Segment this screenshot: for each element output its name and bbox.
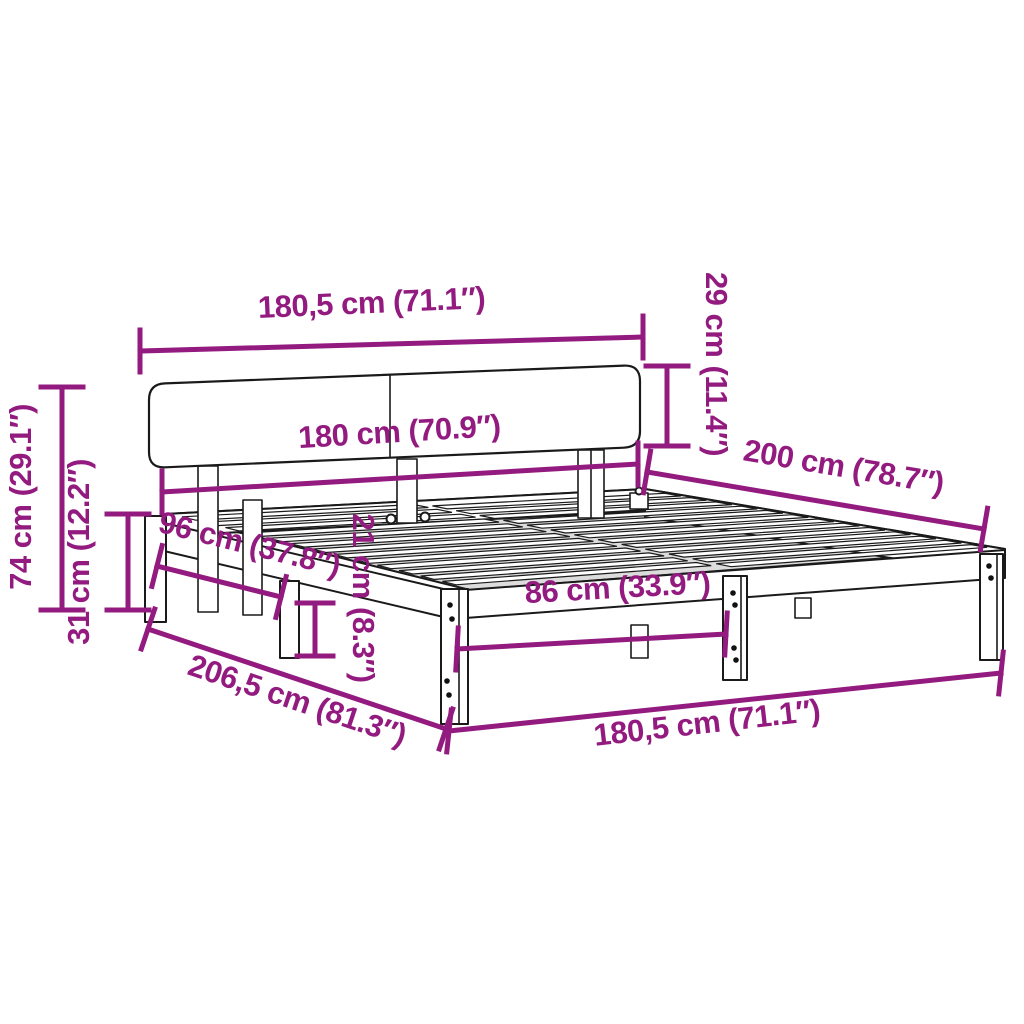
dim-frame-height: 31 cm (12.2″) [61,459,149,645]
dim-label: 180,5 cm (71.1″) [592,692,822,753]
dim-label: 29 cm (11.4″) [699,272,734,456]
leg-foot-right [980,554,1003,660]
dim-label: 21 cm (8.3″) [346,513,381,682]
dimension-diagram-page: 180,5 cm (71.1″) 29 cm (11.4″) 180 cm (7… [0,0,1024,1024]
dim-label: 31 cm (12.2″) [61,459,96,645]
dim-tick [644,451,651,492]
dim-label: 74 cm (29.1″) [3,404,38,590]
dim-tick [725,613,727,655]
bolt-knob-left [387,515,396,524]
dim-tick [981,508,988,549]
dim-overall-width-top: 180,5 cm (71.1″) [140,280,643,372]
headboard-post-center [397,459,417,523]
headboard-post-right [578,450,604,518]
dim-headboard-height: 29 cm (11.4″) [646,272,734,456]
dim-label: 180,5 cm (71.1″) [257,280,486,325]
leg-center-stub [795,598,811,618]
bolt-knob-right [421,513,430,522]
dim-line [140,337,643,351]
dim-label: 200 cm (78.7″) [741,432,947,500]
dim-tick [456,628,458,670]
bed-frame-dimension-diagram: 180,5 cm (71.1″) 29 cm (11.4″) 180 cm (7… [0,0,1024,1024]
dim-line [457,634,726,649]
